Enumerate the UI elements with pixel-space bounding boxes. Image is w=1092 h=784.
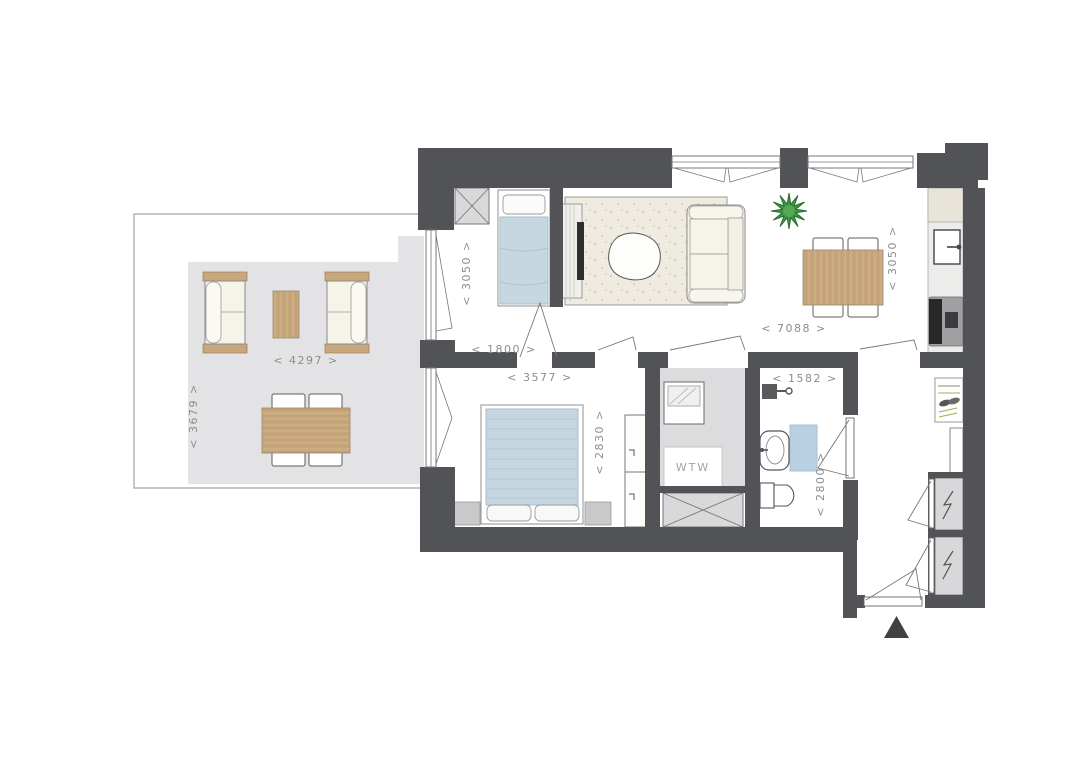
- exterior-wall: [843, 595, 865, 608]
- dim-bathroom-width: < 1582 >: [772, 372, 837, 385]
- sofa: [687, 205, 745, 303]
- dim-bedroom1-width: < 1800 >: [471, 343, 536, 356]
- outdoor-dining-table: [262, 408, 350, 453]
- meter-closet-1: [935, 478, 963, 530]
- washing-machine-icon: [664, 382, 704, 424]
- window: [808, 156, 913, 182]
- interior-wall: [920, 352, 963, 368]
- meter-closet-door: [906, 538, 934, 593]
- meter-closet-door: [908, 479, 934, 528]
- kitchen-sink-icon: [934, 230, 961, 264]
- nightstand: [454, 502, 480, 525]
- interior-wall: [928, 530, 963, 537]
- wtw-label: WTW: [676, 461, 710, 474]
- terrace-sofa-right: [325, 272, 369, 353]
- shower-icon: [762, 384, 792, 399]
- floor-plan-page: WTW: [0, 0, 1092, 784]
- tv-cabinet: [562, 204, 584, 298]
- backrest: [728, 218, 743, 290]
- seat-cushion: [690, 219, 728, 254]
- organic-coffee-table: [609, 233, 661, 280]
- interior-wall: [843, 480, 858, 540]
- kitchen: [928, 188, 963, 360]
- window: [426, 368, 452, 467]
- kitchen-cabinet: [928, 188, 963, 222]
- dim-bedroom2-width: < 3577 >: [507, 371, 572, 384]
- terrace-sofa-left: [203, 272, 247, 353]
- back-cushion: [206, 282, 221, 343]
- dining-table: [803, 250, 883, 305]
- door-swing-bedroom2: [598, 337, 636, 350]
- interior-wall: [660, 486, 745, 493]
- double-bed: [481, 405, 583, 524]
- pillow: [535, 505, 579, 521]
- casement-swing: [436, 372, 452, 464]
- dim-living-depth: < 3050 >: [886, 225, 899, 290]
- floor-plan-drawing: WTW: [0, 0, 1092, 784]
- living-room: [562, 193, 883, 317]
- armrest: [689, 206, 743, 219]
- entrance-hall: [935, 378, 963, 595]
- dim-living-width: < 7088 >: [761, 322, 826, 335]
- outdoor-chair: [309, 394, 342, 409]
- door-swing-living-hall: [860, 340, 917, 350]
- meter-closet-2: [935, 537, 963, 595]
- duct-shaft-icon: [455, 188, 489, 224]
- outdoor-coffee-table: [273, 291, 299, 338]
- blanket: [500, 217, 548, 304]
- stove-icon: [929, 297, 963, 346]
- casement-swing: [674, 168, 726, 182]
- interior-wall: [843, 368, 858, 415]
- single-bed: [498, 190, 550, 306]
- dining-set: [803, 238, 883, 317]
- dim-bedroom2-depth: < 2830 >: [593, 409, 606, 474]
- interior-wall: [552, 352, 595, 368]
- window: [672, 156, 780, 182]
- outdoor-chair: [272, 394, 305, 409]
- window: [426, 230, 452, 340]
- exterior-wall: [963, 188, 985, 600]
- bedroom-2: [454, 405, 650, 527]
- dim-bathroom-depth: < 2800 >: [814, 451, 827, 516]
- tall-cabinet: [950, 428, 963, 475]
- exterior-wall: [418, 148, 454, 230]
- casement-swing: [728, 168, 778, 182]
- interior-wall: [645, 368, 660, 528]
- bathroom-sink-icon: [760, 431, 789, 470]
- interior-wall: [638, 352, 668, 368]
- interior-wall: [745, 368, 760, 528]
- casement-swing: [861, 168, 911, 182]
- back-cushion: [351, 282, 366, 343]
- casement-swing: [810, 168, 859, 182]
- dim-terrace-depth: < 3679 >: [187, 383, 200, 448]
- exterior-wall: [925, 595, 985, 608]
- casement-swing: [436, 235, 452, 331]
- seat-cushion: [690, 254, 728, 289]
- wall-pillar: [780, 148, 808, 188]
- bathroom: [760, 384, 817, 508]
- interior-wall: [550, 188, 563, 307]
- coat-rack-icon: [935, 378, 963, 422]
- entrance-marker-icon: [884, 616, 909, 638]
- blanket: [486, 409, 578, 505]
- duct-shaft-icon: [663, 493, 743, 527]
- toilet-icon: [760, 483, 794, 508]
- pillow: [503, 195, 545, 214]
- exterior-wall: [418, 148, 672, 188]
- exterior-wall: [420, 527, 843, 552]
- exterior-wall: [917, 143, 988, 188]
- interior-wall: [928, 472, 963, 478]
- dim-terrace-width: < 4297 >: [273, 354, 338, 367]
- armrest: [689, 289, 743, 302]
- bath-mat: [790, 425, 817, 471]
- interior-wall: [748, 352, 858, 368]
- plant-icon: [771, 193, 807, 229]
- tv-icon: [577, 222, 584, 280]
- door-swing-wtw: [670, 336, 745, 350]
- dim-bedroom1-depth: < 3050 >: [460, 240, 473, 305]
- pillow: [487, 505, 531, 521]
- nightstand: [585, 502, 611, 525]
